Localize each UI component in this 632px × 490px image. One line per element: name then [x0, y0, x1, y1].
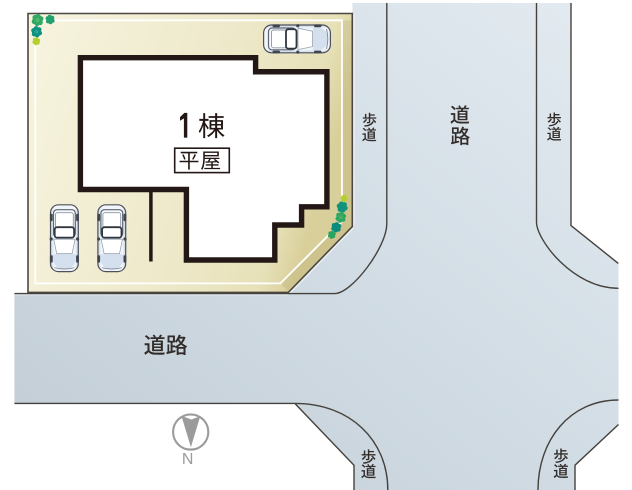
- svg-text:N: N: [182, 451, 194, 468]
